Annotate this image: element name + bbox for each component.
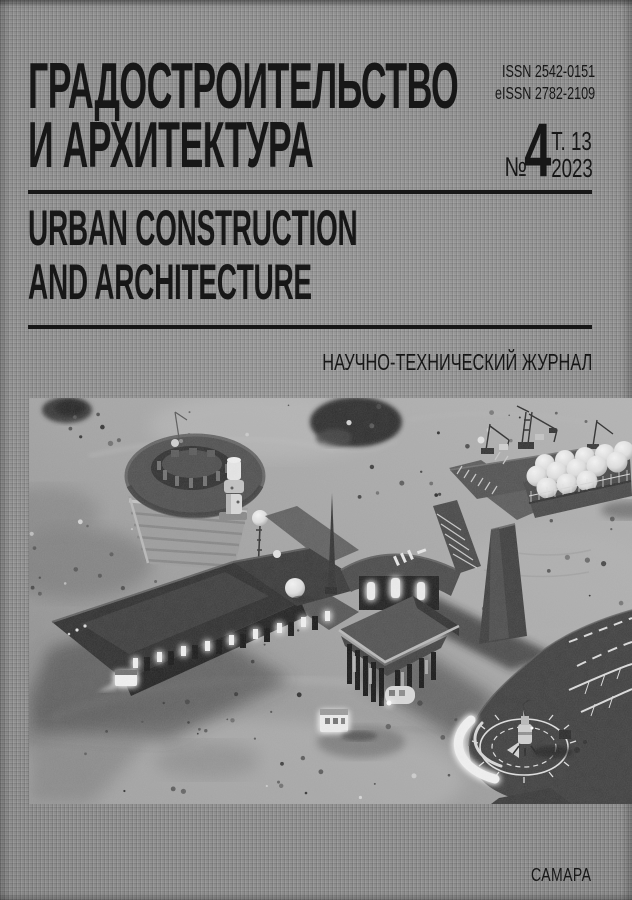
issn-label: ISSN 2542-0151 bbox=[495, 60, 595, 82]
year-label: 2023 bbox=[551, 155, 593, 182]
volume-year-block: Т. 13 2023 bbox=[551, 128, 593, 182]
divider-rule-bottom bbox=[28, 325, 592, 329]
issn-block: ISSN 2542-0151 eISSN 2782-2109 bbox=[495, 60, 595, 104]
divider-rule-top bbox=[28, 190, 592, 194]
publisher-city: САМАРА bbox=[531, 865, 591, 886]
sand-mottle-texture bbox=[29, 398, 632, 804]
volume-label: Т. 13 bbox=[551, 128, 593, 155]
journal-title-russian: ГРАДОСТРОИТЕЛЬСТВО И АРХИТЕКТУРА bbox=[28, 56, 458, 174]
journal-subtitle: НАУЧНО-ТЕХНИЧЕСКИЙ ЖУРНАЛ bbox=[322, 349, 592, 376]
journal-cover: ГРАДОСТРОИТЕЛЬСТВО И АРХИТЕКТУРА ISSN 25… bbox=[0, 0, 632, 900]
journal-title-english: URBAN CONSTRUCTION AND ARCHITECTURE bbox=[28, 201, 357, 309]
cover-illustration-space-colony bbox=[29, 398, 632, 804]
title-ru-line1: ГРАДОСТРОИТЕЛЬСТВО bbox=[28, 56, 458, 115]
issue-number: 4 bbox=[524, 113, 551, 189]
issue-block: № 4 Т. 13 2023 bbox=[463, 110, 593, 180]
title-ru-line2: И АРХИТЕКТУРА bbox=[28, 115, 458, 174]
eissn-label: eISSN 2782-2109 bbox=[495, 82, 595, 104]
title-en-line2: AND ARCHITECTURE bbox=[28, 255, 357, 309]
title-en-line1: URBAN CONSTRUCTION bbox=[28, 201, 357, 255]
